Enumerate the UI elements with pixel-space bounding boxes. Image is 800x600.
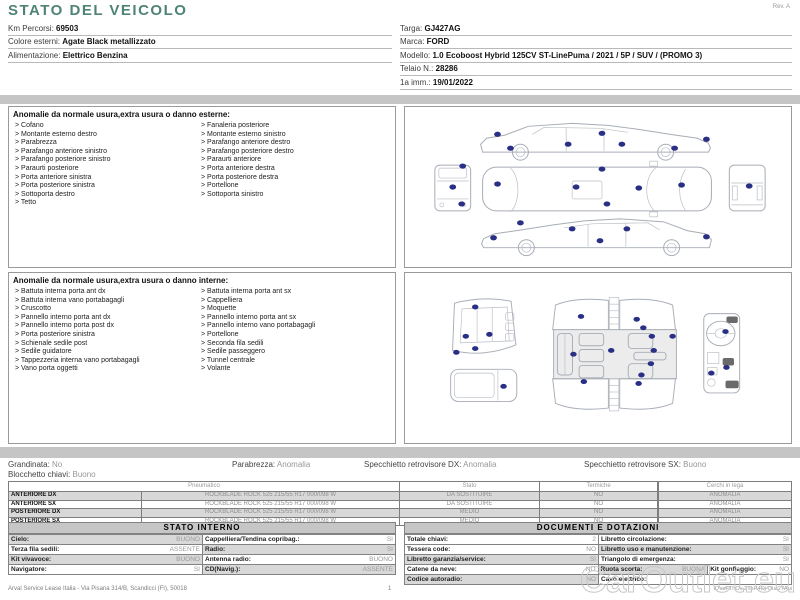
- tyre-table: Pneumatico Stato Termiche ANTERIORE DXRO…: [8, 481, 658, 526]
- car-side-view-right: [481, 123, 711, 160]
- cell-value: NO: [586, 545, 596, 554]
- tyre-position: POSTERIORE DX: [9, 509, 141, 516]
- table-row: Navigatore:SICD(Navig.):ASSENTE: [9, 564, 395, 574]
- vehicle-summary-left: Km Percorsi: 69503Colore esterni: Agate …: [8, 22, 392, 63]
- damage-marker: [703, 137, 710, 142]
- damage-marker: [565, 142, 572, 147]
- status-item: Specchietto retrovisore SX: Buono: [584, 460, 706, 469]
- exterior-anomalies-title: Anomalie da normale usura,extra usura o …: [9, 107, 395, 120]
- documenti-title: DOCUMENTI E DOTAZIONI: [405, 523, 791, 534]
- damage-marker: [604, 201, 611, 206]
- status-value: No: [52, 460, 62, 469]
- vehicle-status-report: STATO DEL VEICOLO Rev. A Km Percorsi: 69…: [0, 0, 800, 600]
- tyre-row: POSTERIORE DXROCKBLADE ROCK 525 215/55 R…: [9, 508, 657, 516]
- tyre-winter: NO: [539, 509, 657, 516]
- condition-status-line: Grandinata: NoParabrezza: AnomaliaSpecch…: [0, 460, 800, 480]
- status-value: Buono: [683, 460, 706, 469]
- exterior-anomalies-box: Anomalie da normale usura,extra usura o …: [8, 106, 396, 268]
- anomaly-item: > Porta posteriore sinistra: [15, 182, 195, 191]
- col-header-cerchi: Cerchi in lega: [659, 482, 791, 491]
- status-item: Specchietto retrovisore DX: Anomalia: [364, 460, 497, 469]
- section-divider: [0, 447, 800, 458]
- field-label: Telaio N.:: [400, 64, 436, 73]
- anomaly-item: > Pannello interno porta ant dx: [15, 314, 195, 323]
- field-label: Modello:: [400, 51, 432, 60]
- damage-marker: [569, 226, 576, 231]
- table-row: Cielo:BUONOCappelliera/Tendina copribag.…: [9, 534, 395, 544]
- cell-value: SI: [783, 535, 789, 544]
- table-row: Totale chiavi:2Libretto circolazione:SI: [405, 534, 791, 544]
- header-field: Alimentazione: Elettrico Benzina: [8, 49, 392, 63]
- anomaly-item: > Vano porta oggetti: [15, 365, 195, 374]
- damage-marker: [649, 334, 655, 339]
- tyre-position: ANTERIORE SX: [9, 501, 141, 508]
- col-header-termiche: Termiche: [539, 482, 657, 491]
- field-label: Alimentazione:: [8, 51, 63, 60]
- anomaly-item: > Parafango anteriore sinistro: [15, 148, 195, 157]
- anomaly-item: > Porta anteriore sinistra: [15, 174, 195, 183]
- anomaly-item: > Parafango anteriore destro: [201, 139, 381, 148]
- field-label: Targa:: [400, 24, 424, 33]
- damage-marker: [671, 146, 678, 151]
- table-row: Kit vivavoce:BUONOAntenna radio:BUONO: [9, 554, 395, 564]
- anomaly-item: > Tetto: [15, 199, 195, 208]
- anomaly-item: > Pannello interno vano portabagagli: [201, 322, 381, 331]
- header-field: 1a imm.: 19/01/2022: [400, 76, 792, 90]
- damage-marker: [458, 201, 465, 206]
- table-cell: Libretto uso e manutenzione:SI: [598, 545, 791, 554]
- status-label: Blocchetto chiavi:: [8, 470, 70, 479]
- header-field: Targa: GJ427AG: [400, 22, 792, 36]
- status-item: Grandinata: No: [8, 460, 62, 469]
- anomaly-item: > Porta posteriore destra: [201, 174, 381, 183]
- damage-marker: [623, 226, 630, 231]
- anomaly-item: > Montante esterno sinistro: [201, 131, 381, 140]
- trunk-open-view: [453, 299, 516, 353]
- cell-label: Terza fila sedili:: [11, 545, 59, 554]
- cell-label: CD(Navig.):: [205, 565, 240, 574]
- damage-marker: [581, 379, 587, 384]
- anomaly-item: > Portellone: [201, 182, 381, 191]
- alloy-row: ANOMALIA: [659, 500, 791, 508]
- damage-marker: [703, 234, 710, 239]
- tyre-state: DA SOSTITUIRE: [399, 492, 539, 499]
- stato-interno-table: STATO INTERNO Cielo:BUONOCappelliera/Ten…: [8, 522, 396, 575]
- damage-marker: [573, 184, 580, 189]
- status-value: Anomalia: [277, 460, 310, 469]
- anomaly-item: > Schienale sedile post: [15, 340, 195, 349]
- field-label: 1a imm.:: [400, 78, 433, 87]
- alloy-wheels-table: Cerchi in lega ANOMALIAANOMALIAANOMALIAA…: [658, 481, 792, 526]
- damage-marker: [507, 146, 514, 151]
- anomaly-item: > Sottoporta destro: [15, 191, 195, 200]
- cell-value: SI: [783, 545, 789, 554]
- anomaly-item: > Paraurti posteriore: [15, 165, 195, 174]
- table-cell: Catene da neve:NO: [405, 565, 598, 574]
- anomaly-item: > Parafango posteriore destro: [201, 148, 381, 157]
- cell-value: BUONO: [176, 535, 200, 544]
- cell-label: Navigatore:: [11, 565, 47, 574]
- interior-anomalies-col2: > Battuta interna porta ant sx> Cappelli…: [195, 286, 381, 374]
- tyre-table-header: Pneumatico Stato Termiche: [9, 482, 657, 491]
- dashboard-view: [704, 314, 740, 393]
- table-cell: CD(Navig.):ASSENTE: [202, 565, 395, 574]
- cell-value: SI: [387, 535, 393, 544]
- interior-car-views: [405, 273, 791, 443]
- interior-anomalies-box: Anomalie da normale usura,extra usura o …: [8, 272, 396, 444]
- damage-marker: [463, 334, 469, 339]
- status-label: Specchietto retrovisore DX:: [364, 460, 463, 469]
- anomaly-item: > Battuta interna vano portabagagli: [15, 297, 195, 306]
- anomaly-item: > Volante: [201, 365, 381, 374]
- tyre-model: ROCKBLADE ROCK 525 215/55 R17 000/098 W: [141, 492, 399, 499]
- damage-marker: [472, 346, 478, 351]
- tyre-position: ANTERIORE DX: [9, 492, 141, 499]
- tyre-winter: NO: [539, 501, 657, 508]
- tailgate-closed-view: [451, 369, 517, 401]
- damage-marker: [570, 352, 576, 357]
- cell-value: SI: [194, 565, 200, 574]
- table-row: Tessera code:NOLibretto uso e manutenzio…: [405, 544, 791, 554]
- header-field: Modello: 1.0 Ecoboost Hybrid 125CV ST-Li…: [400, 49, 792, 63]
- anomaly-item: > Tunnel centrale: [201, 357, 381, 366]
- footer-company: Arval Service Lease Italia - Via Pisana …: [8, 586, 187, 592]
- interior-anomalies-title: Anomalie da normale usura,extra usura o …: [9, 273, 395, 286]
- damage-marker: [722, 329, 728, 334]
- tyre-state: MEDIO: [399, 509, 539, 516]
- table-cell: Terza fila sedili:ASSENTE: [9, 545, 202, 554]
- damage-marker: [490, 235, 497, 240]
- alloy-state: ANOMALIA: [659, 492, 791, 499]
- field-value: 69503: [56, 24, 78, 33]
- damage-marker: [453, 350, 459, 355]
- status-value: Buono: [73, 470, 96, 479]
- anomaly-item: > Pannello interno porta ant sx: [201, 314, 381, 323]
- field-value: FORD: [427, 37, 450, 46]
- col-header-stato: Stato: [399, 482, 539, 491]
- exterior-anomalies-col2: > Fanaleria posteriore> Montante esterno…: [195, 120, 381, 199]
- damage-marker: [634, 317, 640, 322]
- table-cell: Navigatore:SI: [9, 565, 202, 574]
- cell-value: ASSENTE: [363, 565, 393, 574]
- header-field: Telaio N.: 28286: [400, 63, 792, 77]
- table-cell: Codice autoradio:NO: [405, 575, 598, 584]
- damage-marker: [635, 381, 641, 386]
- anomaly-item: > Cofano: [15, 122, 195, 131]
- anomaly-item: > Parabrezza: [15, 139, 195, 148]
- car-side-view-left: [482, 219, 712, 256]
- cell-label: Totale chiavi:: [407, 535, 448, 544]
- damage-marker: [708, 371, 714, 376]
- cell-label: Antenna radio:: [205, 555, 251, 564]
- cell-label: Cielo:: [11, 535, 29, 544]
- table-cell: Radio:SI: [202, 545, 395, 554]
- tyre-model: ROCKBLADE ROCK 525 215/55 R17 000/098 W: [141, 509, 399, 516]
- field-value: Agate Black metallizzato: [62, 37, 155, 46]
- field-value: 1.0 Ecoboost Hybrid 125CV ST-LinePuma / …: [432, 51, 702, 60]
- damage-marker: [500, 384, 506, 389]
- damage-marker: [746, 183, 753, 188]
- damage-marker: [608, 348, 614, 353]
- damage-marker: [638, 373, 644, 378]
- damage-marker: [597, 238, 604, 243]
- revision-label: Rev. A: [773, 4, 790, 10]
- table-row: Terza fila sedili:ASSENTERadio:SI: [9, 544, 395, 554]
- status-label: Grandinata:: [8, 460, 52, 469]
- tyre-state: DA SOSTITUIRE: [399, 501, 539, 508]
- tyre-winter: NO: [539, 492, 657, 499]
- cell-label: Kit vivavoce:: [11, 555, 51, 564]
- car-plan-view: [483, 161, 712, 217]
- anomaly-item: > Montante esterno destro: [15, 131, 195, 140]
- damage-marker: [449, 184, 456, 189]
- page-title: STATO DEL VEICOLO: [8, 2, 187, 19]
- damage-marker: [486, 332, 492, 337]
- anomaly-item: > Battuta interna porta ant sx: [201, 288, 381, 297]
- status-label: Specchietto retrovisore SX:: [584, 460, 683, 469]
- field-label: Marca:: [400, 37, 427, 46]
- header-field: Km Percorsi: 69503: [8, 22, 392, 36]
- alloy-wheels-header: Cerchi in lega: [659, 482, 791, 491]
- field-label: Km Percorsi:: [8, 24, 56, 33]
- alloy-row: ANOMALIA: [659, 491, 791, 499]
- cell-label: Libretto garanzia/service:: [407, 555, 486, 564]
- table-cell: Antenna radio:BUONO: [202, 555, 395, 564]
- anomaly-item: > Seconda fila sedili: [201, 340, 381, 349]
- status-item: Blocchetto chiavi: Buono: [8, 470, 96, 479]
- anomaly-item: > Porta posteriore sinistra: [15, 331, 195, 340]
- interior-anomalies-col1: > Battuta interna porta ant dx> Battuta …: [9, 286, 195, 374]
- damage-marker: [599, 131, 606, 136]
- field-value: 19/01/2022: [433, 78, 473, 87]
- tyre-row: ANTERIORE SXROCKBLADE ROCK 525 215/55 R1…: [9, 500, 657, 508]
- cell-label: Tessera code:: [407, 545, 450, 554]
- section-divider: [0, 95, 800, 104]
- status-value: Anomalia: [463, 460, 496, 469]
- anomaly-item: > Parafango posteriore sinistro: [15, 156, 195, 165]
- anomaly-item: > Cruscotto: [15, 305, 195, 314]
- exterior-damage-markers: [449, 131, 752, 244]
- status-label: Parabrezza:: [232, 460, 277, 469]
- vehicle-summary-right: Targa: GJ427AGMarca: FORDModello: 1.0 Ec…: [400, 22, 792, 90]
- damage-marker: [494, 132, 501, 137]
- alloy-state: ANOMALIA: [659, 509, 791, 516]
- field-value: 28286: [436, 64, 458, 73]
- damage-marker: [459, 164, 466, 169]
- field-label: Colore esterni:: [8, 37, 62, 46]
- tyre-model: ROCKBLADE ROCK 525 215/55 R17 000/098 W: [141, 501, 399, 508]
- table-cell: Libretto circolazione:SI: [598, 535, 791, 544]
- table-cell: Totale chiavi:2: [405, 535, 598, 544]
- anomaly-item: > Tappezzeria interna vano portabagagli: [15, 357, 195, 366]
- exterior-damage-diagram: [404, 106, 792, 268]
- tyre-row: ANTERIORE DXROCKBLADE ROCK 525 215/55 R1…: [9, 491, 657, 499]
- cell-value: BUONO: [176, 555, 200, 564]
- cell-label: Cappelliera/Tendina copribag.:: [205, 535, 300, 544]
- cell-value: SI: [387, 545, 393, 554]
- table-cell: Cappelliera/Tendina copribag.:SI: [202, 535, 395, 544]
- anomaly-item: > Cappelliera: [201, 297, 381, 306]
- field-value: GJ427AG: [424, 24, 460, 33]
- damage-marker: [618, 142, 625, 147]
- damage-marker: [472, 305, 478, 310]
- cell-label: Libretto uso e manutenzione:: [601, 545, 692, 554]
- cell-value: BUONO: [369, 555, 393, 564]
- table-cell: Cielo:BUONO: [9, 535, 202, 544]
- anomaly-item: > Portellone: [201, 331, 381, 340]
- table-cell: Tessera code:NO: [405, 545, 598, 554]
- damage-marker: [517, 220, 524, 225]
- alloy-row: ANOMALIA: [659, 508, 791, 516]
- damage-marker: [578, 314, 584, 319]
- cell-label: Codice autoradio:: [407, 575, 462, 584]
- cell-value: 2: [592, 535, 596, 544]
- damage-marker: [723, 365, 729, 370]
- anomaly-item: > Paraurti anteriore: [201, 156, 381, 165]
- cell-label: Radio:: [205, 545, 225, 554]
- anomaly-item: > Porta anteriore destra: [201, 165, 381, 174]
- damage-marker: [678, 182, 685, 187]
- alloy-state: ANOMALIA: [659, 501, 791, 508]
- anomaly-item: > Sedile guidatore: [15, 348, 195, 357]
- anomaly-item: > Pannello interno porta post dx: [15, 322, 195, 331]
- anomaly-item: > Sottoporta sinistro: [201, 191, 381, 200]
- field-value: Elettrico Benzina: [63, 51, 128, 60]
- damage-marker: [494, 181, 501, 186]
- anomaly-item: > Fanaleria posteriore: [201, 122, 381, 131]
- watermark: CarOutlet.eu: [572, 554, 800, 600]
- cell-label: Catene da neve:: [407, 565, 457, 574]
- anomaly-item: > Battuta interna porta ant dx: [15, 288, 195, 297]
- exterior-car-views: [405, 107, 791, 267]
- table-cell: Libretto garanzia/service:SI: [405, 555, 598, 564]
- table-cell: Kit vivavoce:BUONO: [9, 555, 202, 564]
- anomaly-item: > Sedile passeggero: [201, 348, 381, 357]
- col-header-pneumatico: Pneumatico: [9, 482, 399, 491]
- damage-marker: [651, 348, 657, 353]
- stato-interno-title: STATO INTERNO: [9, 523, 395, 534]
- header-field: Colore esterni: Agate Black metallizzato: [8, 36, 392, 50]
- interior-damage-diagram: [404, 272, 792, 444]
- cell-label: Libretto circolazione:: [601, 535, 667, 544]
- damage-marker: [640, 325, 646, 330]
- watermark-text: CarOutlet.eu: [580, 559, 796, 600]
- page-number: 1: [388, 586, 391, 592]
- header-field: Marca: FORD: [400, 36, 792, 50]
- damage-marker: [648, 361, 654, 366]
- anomaly-item: > Moquette: [201, 305, 381, 314]
- cell-value: ASSENTE: [170, 545, 200, 554]
- damage-marker: [635, 185, 642, 190]
- status-item: Parabrezza: Anomalia: [232, 460, 310, 469]
- exterior-anomalies-col1: > Cofano> Montante esterno destro> Parab…: [9, 120, 195, 208]
- damage-marker: [599, 167, 606, 172]
- damage-marker: [669, 334, 675, 339]
